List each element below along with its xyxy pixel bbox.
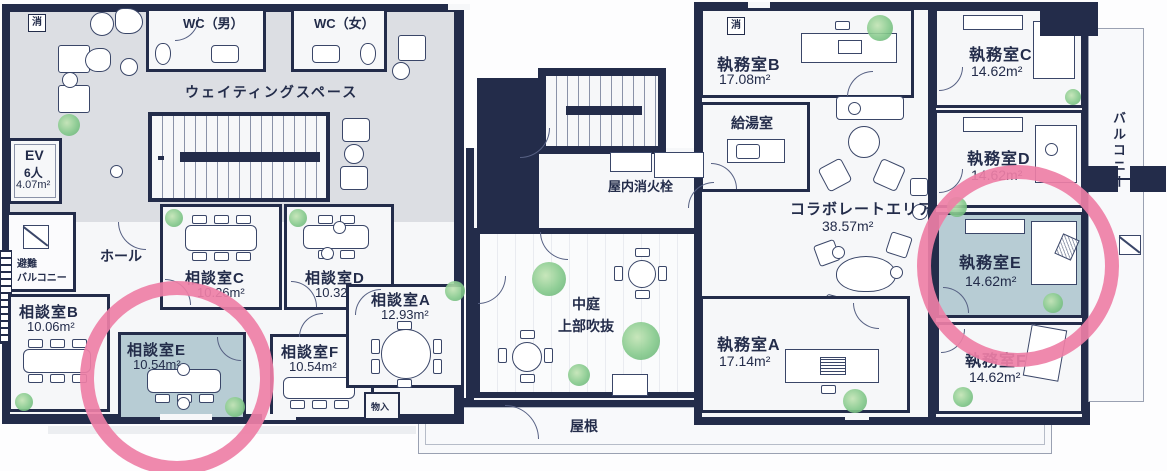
plant-icon xyxy=(15,393,33,411)
elevator-label: EV xyxy=(25,147,44,163)
sofa xyxy=(836,96,904,120)
person-icon xyxy=(333,221,346,234)
plant-icon xyxy=(867,15,893,41)
waiting-side-table xyxy=(344,144,364,164)
door-arc xyxy=(853,303,879,329)
courtyard-label-2: 上部吹抜 xyxy=(558,316,614,336)
waiting-blob-table xyxy=(120,58,138,76)
meeting-table-set xyxy=(185,215,257,261)
waiting-space-label: ウェイティングスペース xyxy=(185,82,358,102)
office-room-a: 執務室A 17.14m² xyxy=(700,296,910,413)
floor-plan: 屋根 ウェイティングスペース 消 WC（男） WC（女） EV xyxy=(0,0,1167,471)
window xyxy=(448,4,470,10)
waiting-armchair xyxy=(398,35,426,61)
chair xyxy=(50,374,65,383)
plant-icon xyxy=(445,281,465,301)
chair xyxy=(28,374,43,383)
table xyxy=(283,377,355,399)
window xyxy=(748,2,770,8)
escape-balcony-label-2: バルコニー xyxy=(17,269,67,284)
chair-row xyxy=(28,339,87,348)
roof-label: 屋根 xyxy=(570,416,598,436)
round-table xyxy=(628,260,656,288)
corner-wall-block xyxy=(1040,2,1098,36)
door-arc xyxy=(939,67,963,91)
chair-row xyxy=(192,252,251,261)
cabinet xyxy=(963,15,1023,30)
chair xyxy=(520,330,535,339)
chair xyxy=(318,215,333,224)
waiting-blob-table xyxy=(90,12,114,36)
center-left-wall xyxy=(466,148,474,400)
chair xyxy=(28,339,43,348)
person-icon xyxy=(1045,143,1058,156)
chair xyxy=(334,400,349,409)
chair xyxy=(821,385,836,394)
person-icon xyxy=(890,266,903,279)
storage-label: 物入 xyxy=(371,400,389,413)
plant-icon xyxy=(843,389,867,413)
hydrant-cabinet xyxy=(654,152,704,178)
printer-icon xyxy=(820,357,846,375)
chair xyxy=(50,339,65,348)
chair-row xyxy=(28,374,87,383)
chair xyxy=(635,290,650,299)
window xyxy=(262,414,296,420)
sink-icon xyxy=(211,45,239,63)
elevator-area: 4.07m² xyxy=(16,179,50,191)
plant-icon xyxy=(289,209,307,227)
kitchenette-room: 給湯室 xyxy=(700,102,810,192)
highlight-circle-meeting-e xyxy=(80,281,274,471)
window xyxy=(845,414,869,420)
chair xyxy=(835,21,850,30)
table xyxy=(185,225,257,251)
fire-extinguisher-icon-right: 消 xyxy=(727,17,745,35)
chair xyxy=(236,215,251,224)
door-arc xyxy=(847,71,873,97)
elevator-room: EV 6人 4.07m² xyxy=(8,138,62,204)
lounge-chair xyxy=(885,231,913,259)
chair xyxy=(312,400,327,409)
round-table xyxy=(381,329,431,379)
chair xyxy=(290,400,305,409)
lounge-chair xyxy=(872,158,906,192)
chair xyxy=(614,266,623,281)
kitchenette-label: 給湯室 xyxy=(731,113,773,133)
chair xyxy=(498,348,507,363)
chair xyxy=(520,374,535,383)
toilet-icon xyxy=(360,43,376,65)
waiting-blob-table xyxy=(85,48,111,72)
chair xyxy=(236,252,251,261)
office-a-area: 17.14m² xyxy=(719,353,770,369)
chair xyxy=(433,339,442,354)
monitor-icon xyxy=(838,40,862,54)
escape-hatch-icon xyxy=(1119,235,1141,255)
person-icon xyxy=(110,165,123,178)
office-b-area: 17.08m² xyxy=(719,71,770,87)
person-icon xyxy=(832,246,845,259)
escape-hatch-icon xyxy=(23,225,49,249)
chair xyxy=(397,379,412,388)
chair xyxy=(371,339,380,354)
sink-icon xyxy=(312,45,340,63)
wc-male-room: WC（男） xyxy=(146,8,266,72)
storage-closet: 物入 xyxy=(364,392,400,420)
lounge-chair xyxy=(817,157,852,192)
plant-icon xyxy=(165,209,183,227)
round-table xyxy=(848,126,880,158)
desk xyxy=(785,349,879,383)
hydrant-cabinet xyxy=(610,152,652,172)
wc-male-label: WC（男） xyxy=(183,13,244,32)
chair xyxy=(371,359,380,374)
chair xyxy=(433,359,442,374)
chair xyxy=(544,348,553,363)
waiting-blob-table xyxy=(115,8,143,34)
chair-row xyxy=(290,400,349,409)
planter-bench xyxy=(612,374,648,396)
office-f-area: 14.62m² xyxy=(969,369,1020,385)
tree-icon xyxy=(568,364,590,386)
meeting-a-area: 12.93m² xyxy=(381,307,429,322)
highlight-circle-office-e xyxy=(917,165,1119,367)
wc-female-room: WC（女） xyxy=(291,8,387,72)
chair xyxy=(658,266,667,281)
chair xyxy=(340,250,355,259)
meeting-b-area: 10.06m² xyxy=(27,319,75,334)
plant-icon xyxy=(953,387,973,407)
door-arc xyxy=(711,163,737,189)
chair xyxy=(192,252,207,261)
plant-icon xyxy=(1065,89,1081,105)
collaborate-name: コラボレートエリア xyxy=(790,198,934,219)
waiting-side-table xyxy=(62,72,78,88)
office-room-b: 消 執務室B 17.08m² xyxy=(700,8,914,98)
meeting-room-a: 相談室A 12.93m² xyxy=(346,284,464,388)
fire-staircase xyxy=(538,68,666,154)
waiting-armchair xyxy=(58,85,90,113)
kitchen-sink-counter xyxy=(727,139,785,163)
toilet-icon xyxy=(155,43,171,65)
fire-hydrant-label: 屋内消火栓 xyxy=(608,176,673,195)
stair-arrow xyxy=(158,156,164,160)
chair xyxy=(214,215,229,224)
balcony-partition-line xyxy=(1088,178,1166,180)
tree-icon xyxy=(622,322,660,360)
courtyard: 中庭 上部吹抜 xyxy=(474,228,700,398)
waiting-side-table xyxy=(392,62,410,80)
fire-extinguisher-icon-left: 消 xyxy=(28,14,46,32)
meeting-table-set xyxy=(283,377,355,409)
stair-landing xyxy=(566,106,642,115)
escape-balcony-label-1: 避難 xyxy=(17,255,37,270)
meeting-f-area: 10.54m² xyxy=(289,359,337,374)
hall-label: ホール xyxy=(100,246,142,266)
person-icon xyxy=(848,102,861,115)
sink-icon xyxy=(736,144,760,159)
half-round-table xyxy=(836,256,896,292)
main-staircase xyxy=(148,112,330,202)
wc-female-label: WC（女） xyxy=(314,13,375,32)
escape-balcony: 避難 バルコニー xyxy=(6,212,76,292)
cabinet xyxy=(963,117,1023,132)
courtyard-label-1: 中庭 xyxy=(572,294,600,314)
chair-row xyxy=(192,215,251,224)
stair-landing xyxy=(180,152,320,162)
waiting-armchair xyxy=(342,118,370,142)
stool xyxy=(910,178,928,196)
office-c-name: 執務室C xyxy=(969,41,1033,65)
tree-icon xyxy=(532,262,566,296)
person-icon xyxy=(321,247,334,260)
round-table xyxy=(512,342,542,372)
office-a-name: 執務室A xyxy=(717,331,781,355)
collaborate-area-value: 38.57m² xyxy=(822,218,873,234)
chair xyxy=(214,252,229,261)
office-c-area: 14.62m² xyxy=(971,63,1022,79)
waiting-armchair xyxy=(340,166,368,190)
plant-icon xyxy=(58,114,80,136)
chair xyxy=(192,215,207,224)
chair xyxy=(635,248,650,257)
